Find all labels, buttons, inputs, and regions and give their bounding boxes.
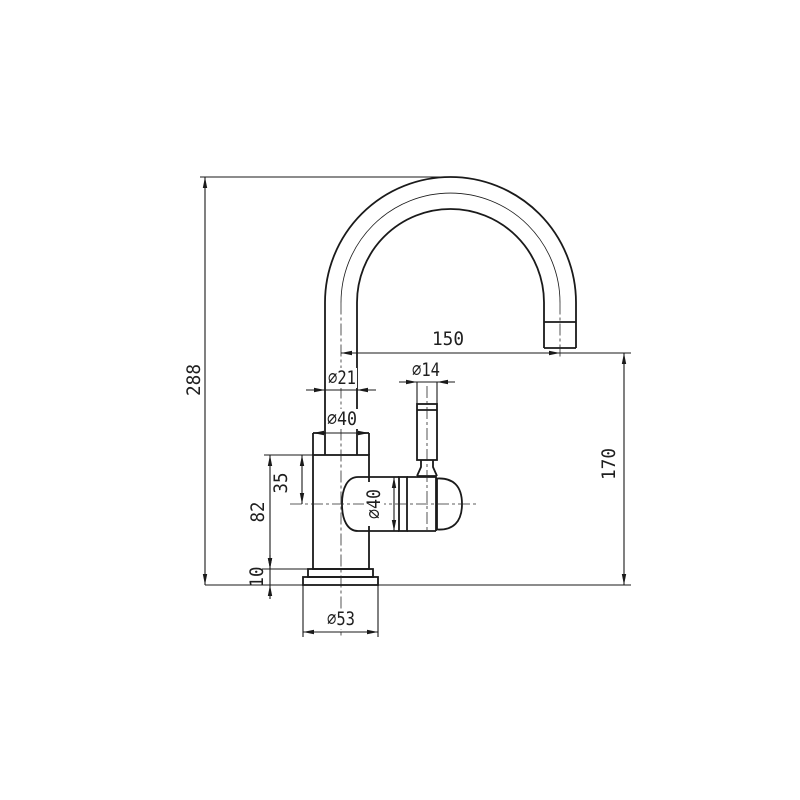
dim-label-base-diameter: ⌀53	[327, 608, 355, 630]
base-flange	[308, 569, 373, 577]
faucet-dimension-drawing: 288 150 170 ⌀21 ⌀40	[0, 0, 800, 800]
dim-label-overall-height: 288	[183, 364, 205, 396]
dim-label-neck-diameter: ⌀40	[327, 408, 357, 430]
dimension-spout-height: 170	[598, 353, 624, 585]
dim-label-spout-height: 170	[598, 448, 620, 480]
dimension-spout-reach: 150	[341, 328, 560, 353]
spout-outer-arc	[325, 177, 576, 302]
spout-arc	[325, 177, 576, 455]
dim-label-handle-diameter: ⌀14	[412, 359, 440, 381]
base-plate	[303, 577, 378, 585]
dimension-base-height: 10	[246, 555, 270, 599]
dim-label-pipe-diameter: ⌀21	[328, 367, 356, 389]
dim-label-body-height: 82	[247, 502, 269, 523]
dim-label-valve-diameter: ⌀40	[363, 489, 385, 519]
dimension-overall-height: 288	[183, 177, 205, 585]
dimension-base-diameter: ⌀53	[303, 608, 378, 632]
dimension-handle-diameter: ⌀14	[399, 359, 455, 382]
dim-label-body-top-to-valve-center: 35	[270, 473, 292, 494]
dimension-pipe-diameter: ⌀21	[306, 367, 376, 390]
dimension-annotations: 288 150 170 ⌀21 ⌀40	[183, 177, 631, 637]
dim-label-base-height: 10	[246, 567, 268, 588]
dim-label-spout-reach: 150	[432, 328, 464, 350]
dimension-neck-diameter: ⌀40	[313, 408, 369, 433]
technical-drawing-canvas: 288 150 170 ⌀21 ⌀40	[0, 0, 800, 800]
dimension-body-height: 82	[247, 455, 270, 569]
spout-inner-arc	[357, 209, 544, 303]
dimension-body-top-to-valve-center: 35	[270, 455, 302, 504]
